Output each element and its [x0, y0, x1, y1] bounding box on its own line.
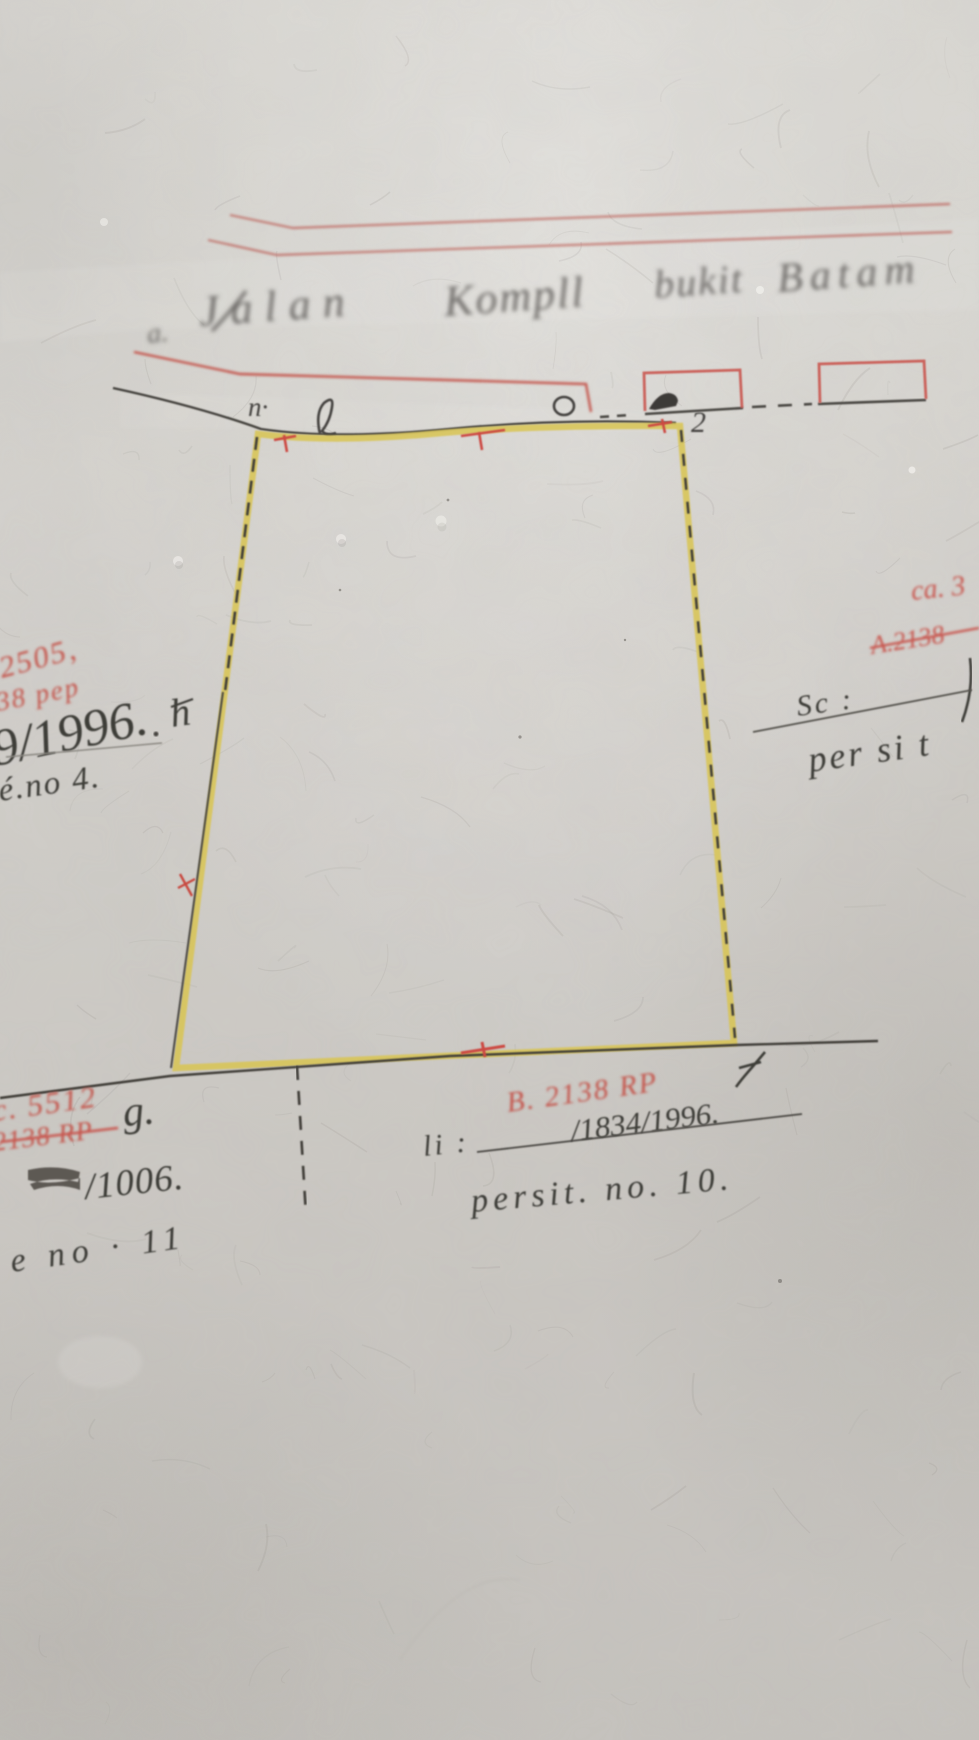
svg-text:a.: a. [145, 317, 169, 350]
svg-text:bukit: bukit [652, 256, 745, 307]
svg-text:2: 2 [691, 406, 706, 439]
svg-text:Kompll: Kompll [441, 267, 587, 326]
svg-text:n·: n· [248, 392, 268, 422]
svg-text:g.: g. [121, 1087, 156, 1136]
svg-text:ca. 3: ca. 3 [909, 570, 966, 607]
svg-text:li :: li : [421, 1125, 470, 1163]
